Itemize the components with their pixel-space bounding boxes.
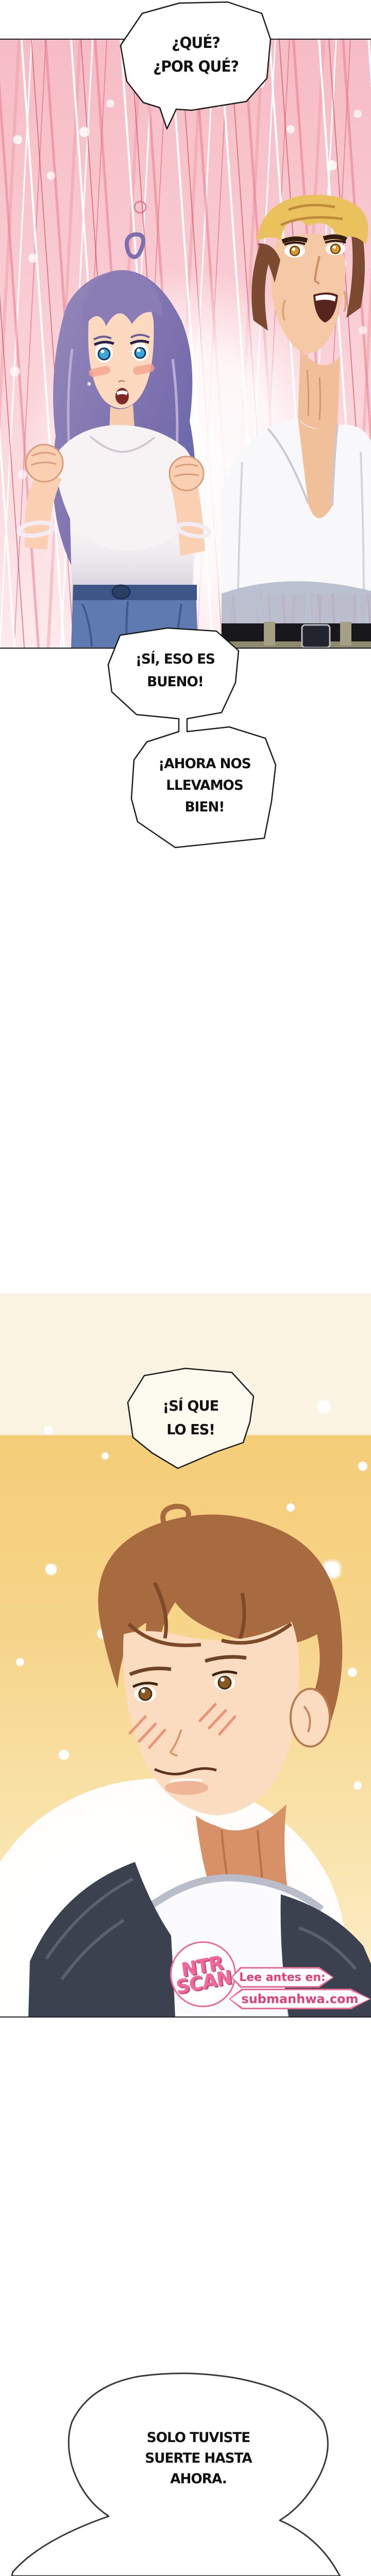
comic-page: ¿QUÉ? ¿POR QUÉ? ¡SÍ, ESO ES BUENO! ¡AHOR… (0, 0, 371, 2576)
watermark-site-banner: submanhwa.com (229, 1989, 371, 2009)
bubble1-line2: ¿POR QUÉ? (133, 55, 259, 78)
banner-fill: Lee antes en: (232, 1969, 332, 1986)
bubble4-line1: ¡SÍ QUE (128, 1394, 254, 1418)
bubble-text-que-por-que: ¿QUÉ? ¿POR QUÉ? (133, 31, 259, 78)
bubble4-line2: LO ES! (128, 1418, 254, 1442)
bubble3-line2: LLEVAMOS (142, 775, 267, 796)
watermark-site-text: submanhwa.com (241, 1992, 358, 2006)
bubble2-line1: ¡SÍ, ESO ES (113, 648, 238, 671)
bubble5-line1: SOLO TUVISTE (121, 2428, 276, 2448)
bubble3-line1: ¡AHORA NOS (142, 753, 267, 775)
bubble-text-si-que-lo-es: ¡SÍ QUE LO ES! (128, 1394, 254, 1442)
bubble3-line3: BIEN! (142, 796, 267, 818)
man-blonde-illustration (222, 195, 371, 648)
woman-illustration (18, 234, 211, 648)
banner-fill: submanhwa.com (230, 1990, 369, 2008)
ntr-scan-stamp: NTR SCAN (166, 1938, 240, 2011)
bubble-text-si-eso-es-bueno: ¡SÍ, ESO ES BUENO! (113, 648, 238, 693)
scanlation-watermark: NTR SCAN Lee antes en: submanhwa.com (170, 1941, 371, 2011)
bubble-text-solo-tuviste: SOLO TUVISTE SUERTE HASTA AHORA. (121, 2428, 276, 2489)
bubble2-line2: BUENO! (113, 671, 238, 693)
watermark-lead-text: Lee antes en: (239, 1971, 326, 1984)
watermark-lead-banner: Lee antes en: (231, 1967, 334, 1988)
bubble-text-ahora-nos-llevamos: ¡AHORA NOS LLEVAMOS BIEN! (142, 753, 267, 818)
bubble5-line2: SUERTE HASTA AHORA. (121, 2448, 276, 2489)
bubble1-line1: ¿QUÉ? (133, 31, 259, 55)
